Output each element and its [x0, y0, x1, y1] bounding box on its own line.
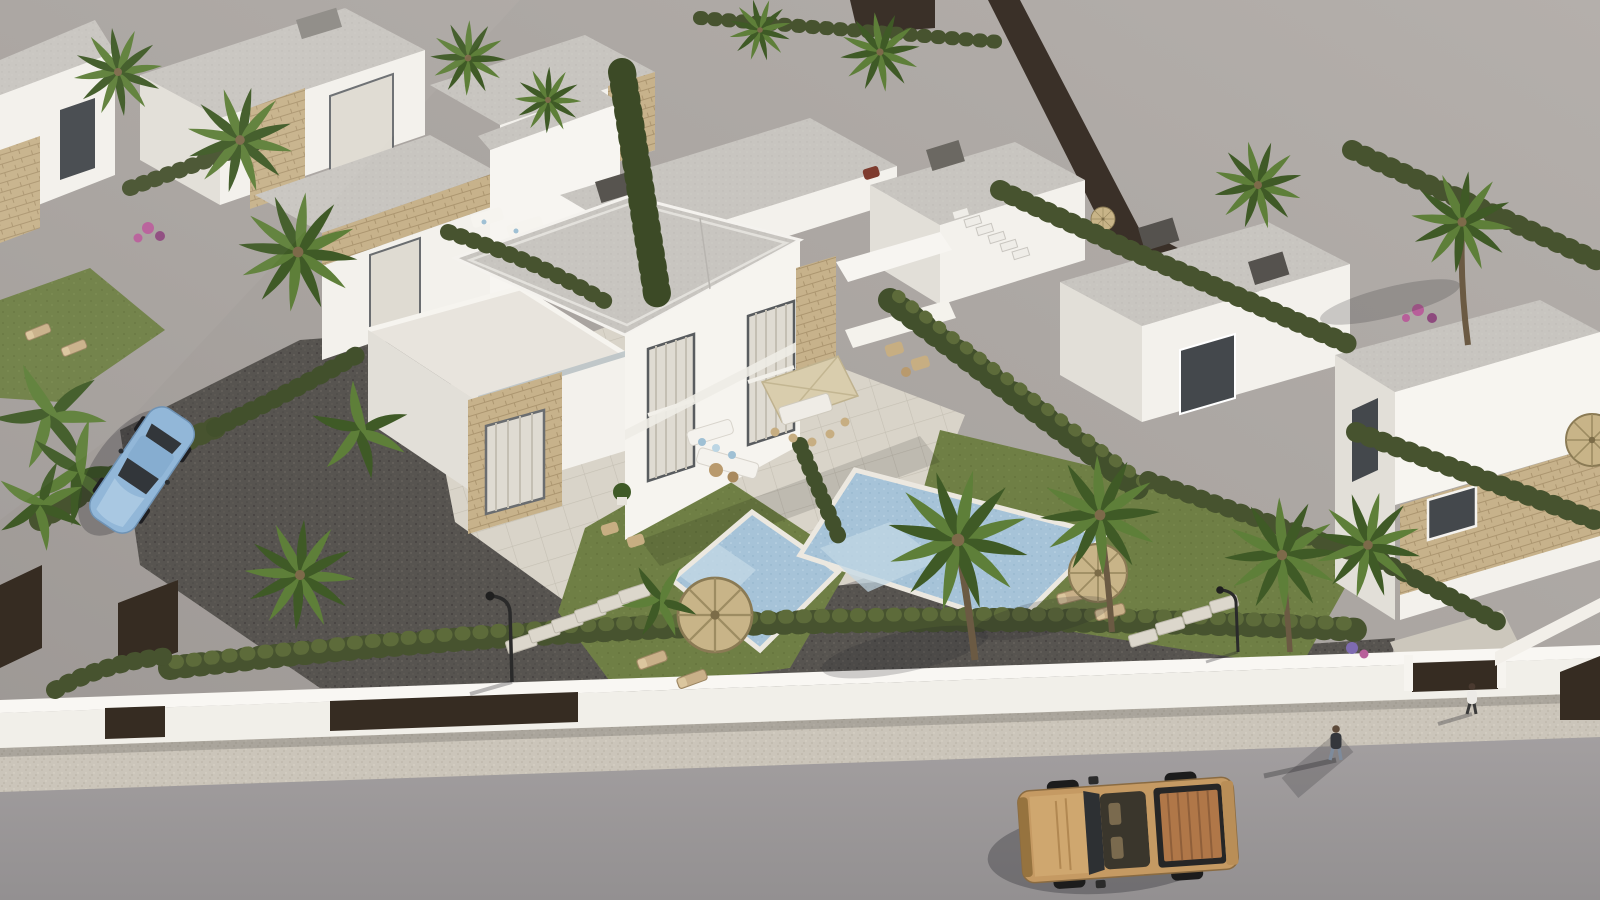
gate-small-left	[105, 706, 165, 739]
coffee-table	[901, 367, 911, 377]
mirror	[1088, 776, 1099, 785]
scene-svg	[0, 0, 1600, 900]
straw-parasol-left	[678, 578, 752, 652]
hood	[1029, 793, 1088, 877]
gate-right	[1412, 660, 1498, 692]
cab-interior	[1099, 791, 1150, 870]
mirror	[1095, 880, 1106, 889]
aerial-render-canvas	[0, 0, 1600, 900]
coffee-table	[709, 463, 723, 477]
gate-pillar	[1404, 655, 1413, 691]
glass-door-curtains	[486, 410, 544, 514]
